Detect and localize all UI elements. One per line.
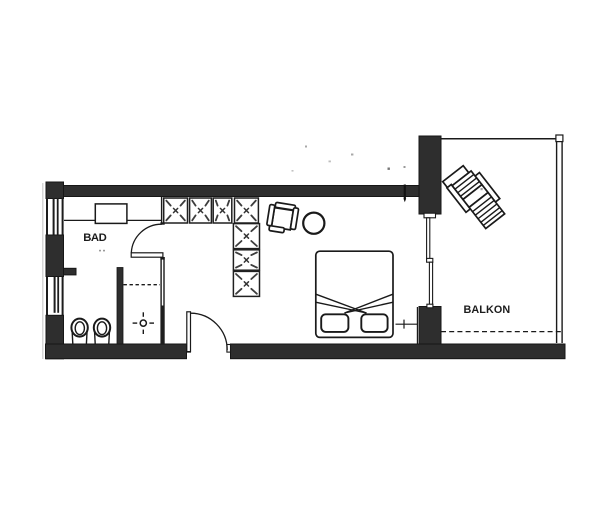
svg-text:BALKON: BALKON	[464, 304, 511, 316]
svg-text:BAD: BAD	[83, 232, 106, 244]
